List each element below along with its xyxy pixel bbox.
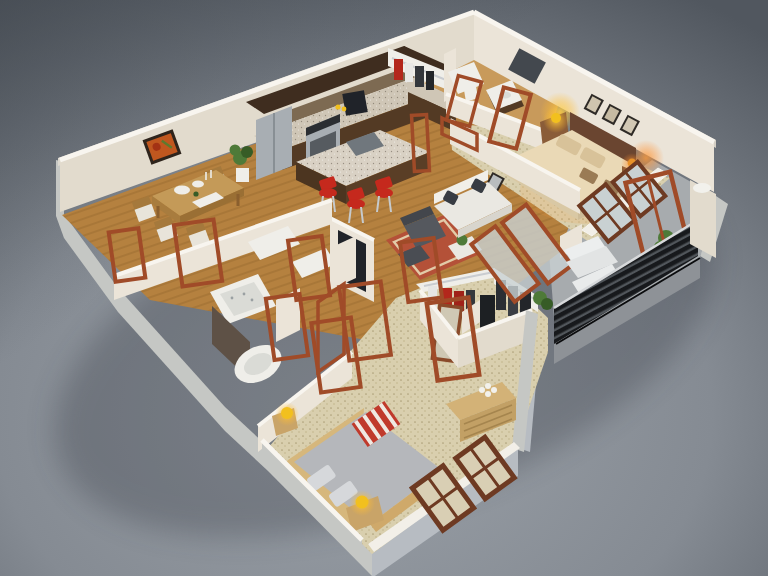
tub-jet-2	[243, 293, 246, 296]
plate-1	[174, 186, 190, 195]
lemon-2	[342, 107, 347, 112]
plant-foliage-3	[230, 145, 241, 156]
garment-dark	[415, 66, 424, 87]
stool-seat-3	[375, 188, 393, 198]
lamp2-left	[281, 407, 293, 419]
bottle	[193, 191, 198, 196]
balcony-round-table	[693, 183, 711, 193]
floor-plan-svg: 3D isometric cutaway floor plan renderin…	[0, 0, 768, 576]
lamp-left	[551, 113, 561, 123]
plant-foliage-2	[241, 146, 253, 158]
garment-dark-2	[426, 71, 434, 90]
lamp2-right	[356, 496, 369, 509]
plant-pot	[236, 168, 249, 182]
stool-seat-2	[347, 199, 365, 209]
plate-2	[192, 181, 204, 188]
tub-jet-1	[231, 297, 234, 300]
tub-jet-3	[251, 299, 254, 302]
garment-red	[394, 59, 403, 80]
lemon-1	[335, 104, 340, 109]
garment-white	[405, 63, 413, 82]
stool-seat-1	[319, 188, 337, 198]
floor-plan-render: 3D isometric cutaway floor plan renderin…	[0, 0, 768, 576]
coffee-maker	[342, 90, 367, 115]
